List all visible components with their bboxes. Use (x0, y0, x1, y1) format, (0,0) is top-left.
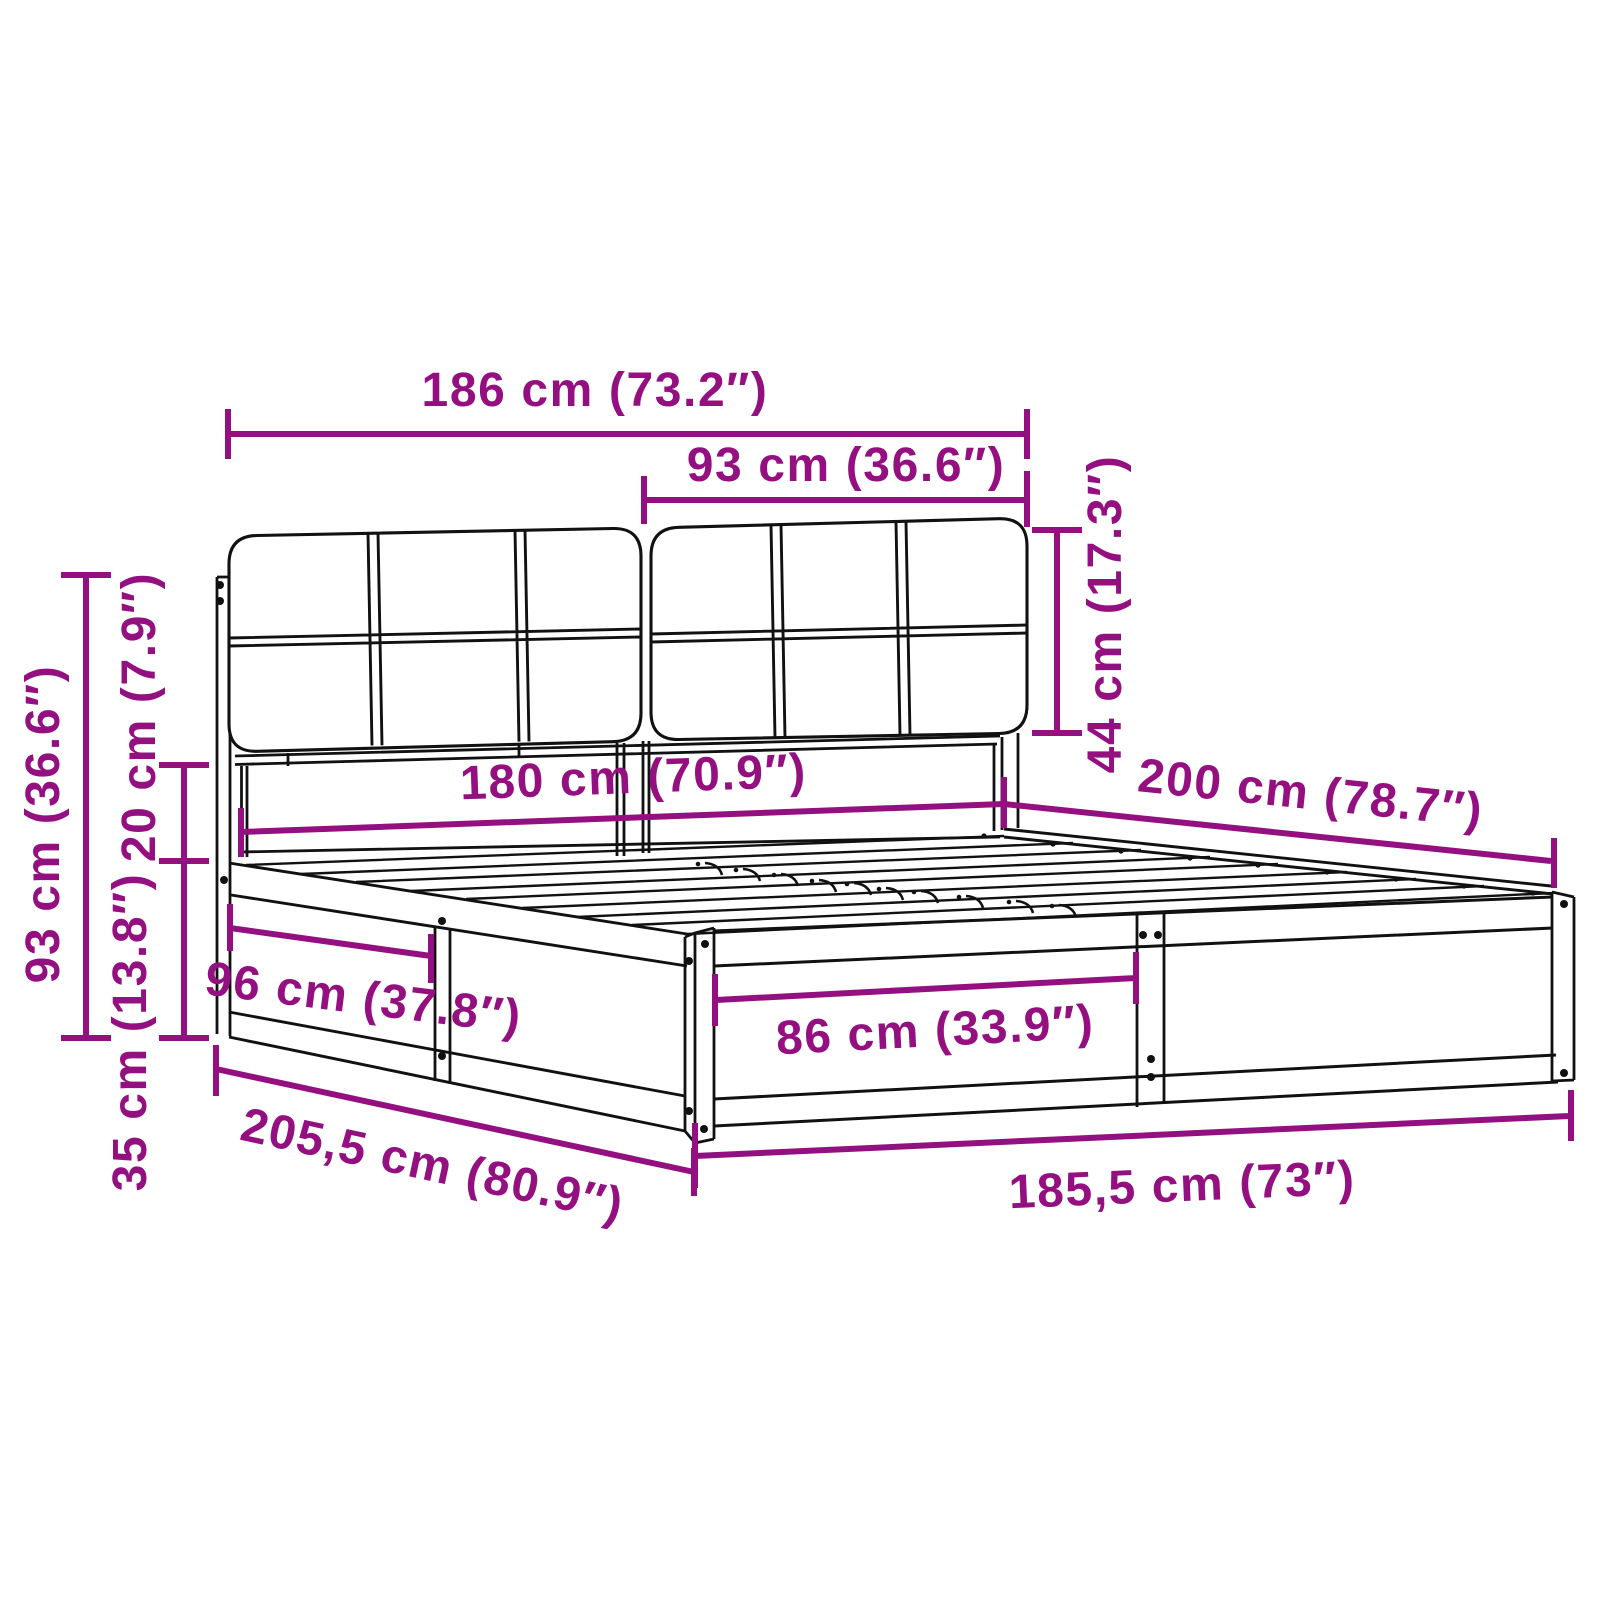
svg-text:93 cm (36.6″): 93 cm (36.6″) (17, 665, 70, 984)
svg-text:44 cm (17.3″): 44 cm (17.3″) (1079, 455, 1132, 774)
svg-text:35 cm (13.8″): 35 cm (13.8″) (104, 873, 157, 1192)
svg-text:186 cm (73.2″): 186 cm (73.2″) (422, 364, 769, 417)
svg-text:20 cm (7.9″): 20 cm (7.9″) (113, 572, 166, 862)
svg-text:93 cm (36.6″): 93 cm (36.6″) (687, 439, 1006, 492)
